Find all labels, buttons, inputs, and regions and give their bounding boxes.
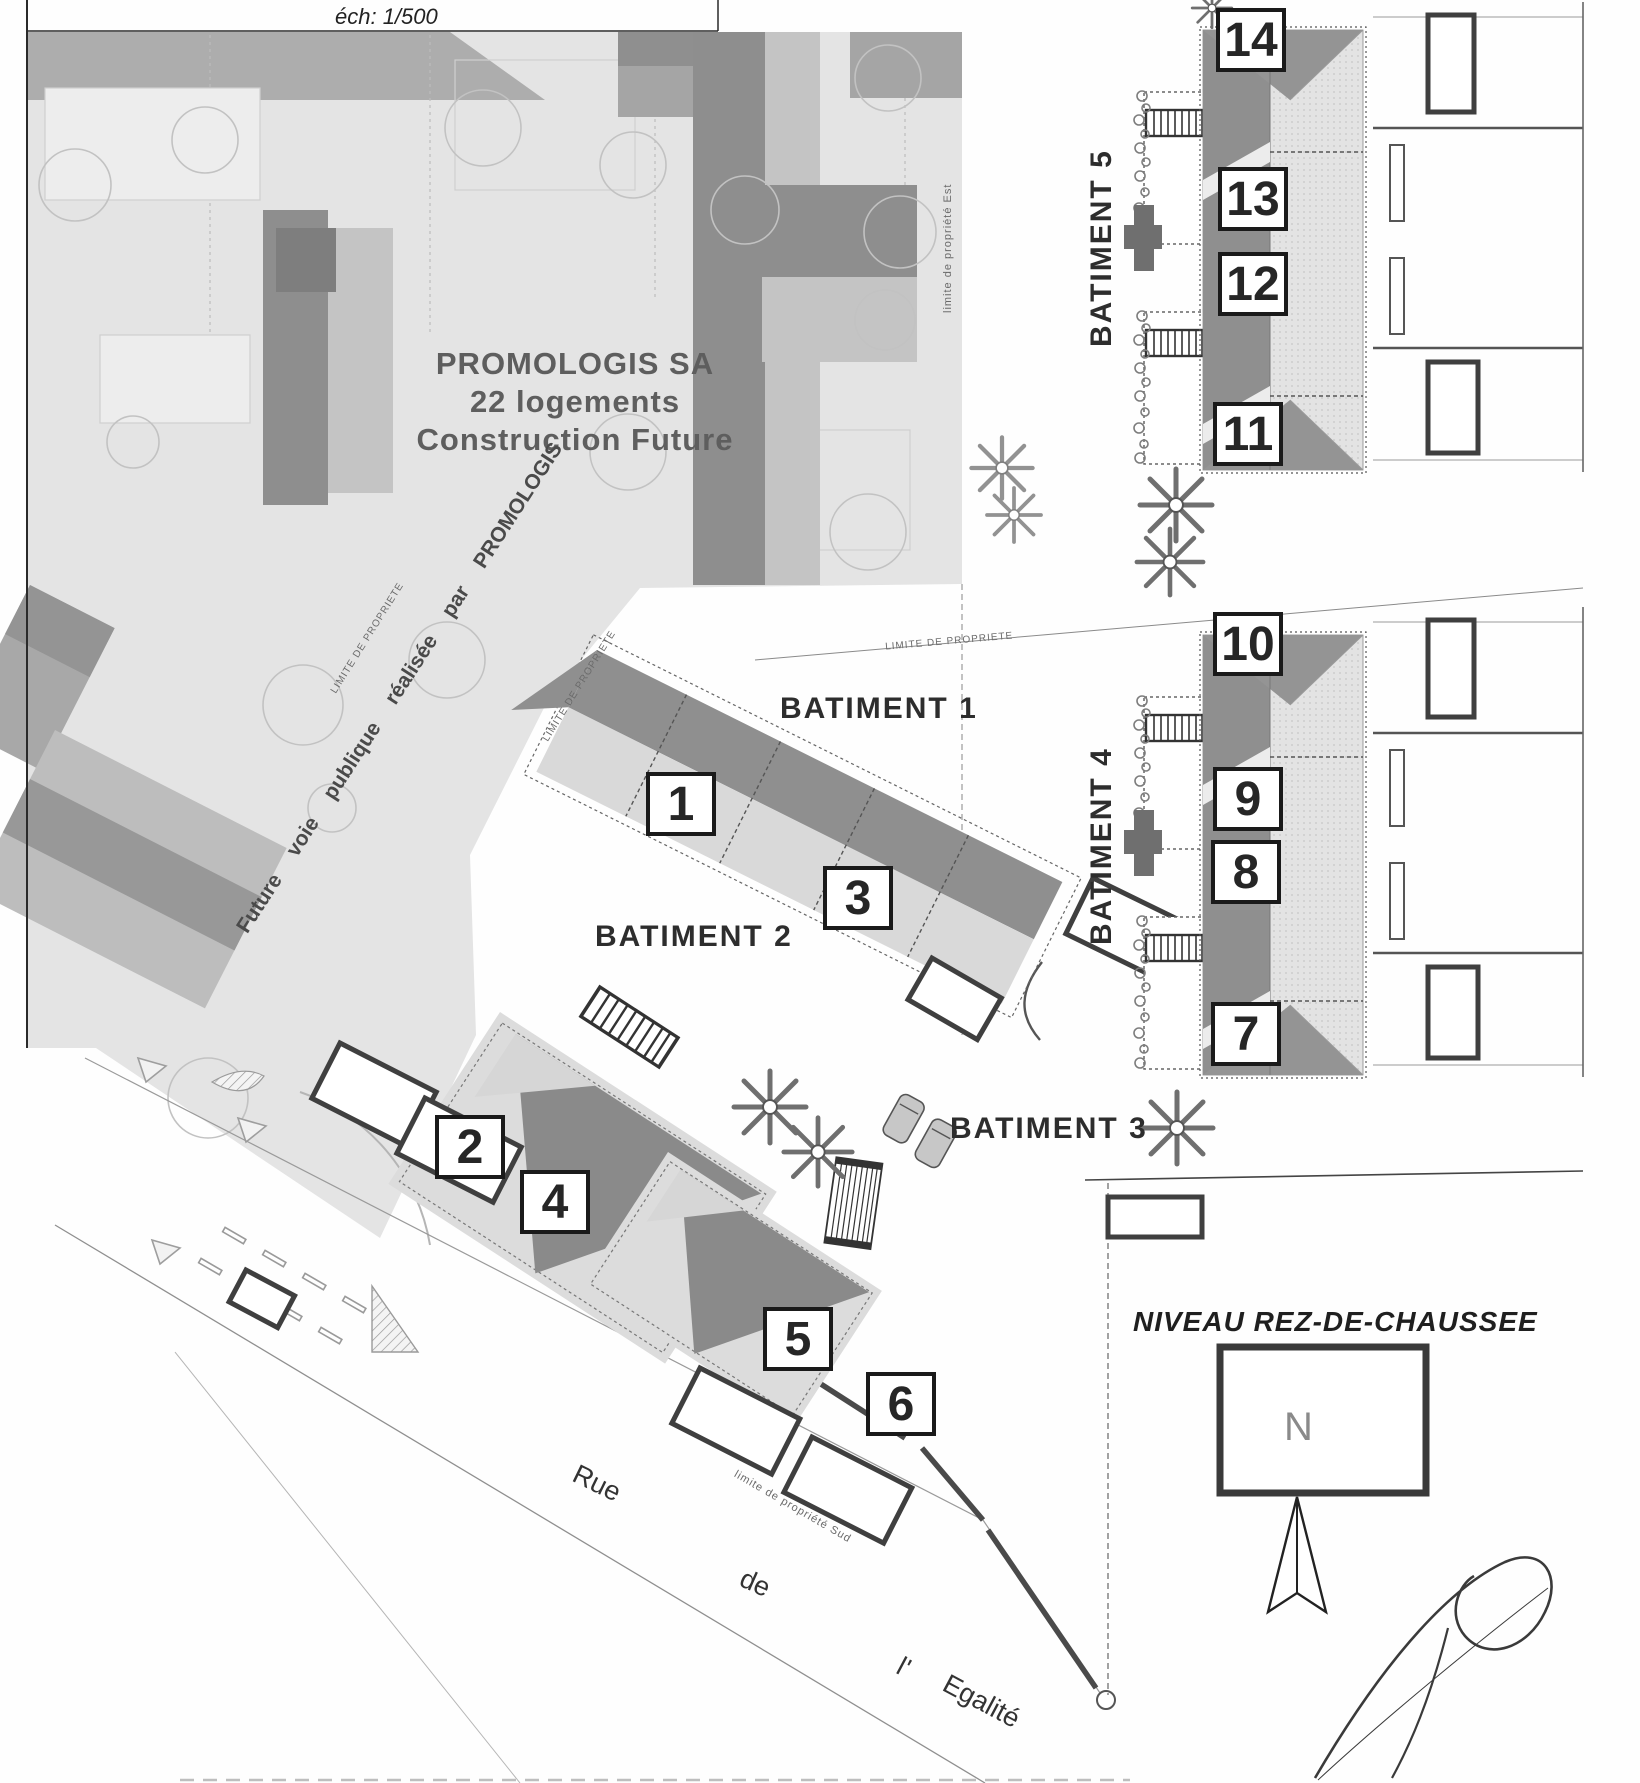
north-letter: N	[1284, 1405, 1313, 1450]
signature	[1315, 1557, 1552, 1780]
future-project-units: 22 logements	[330, 383, 820, 421]
unit-box-11: 11	[1213, 402, 1283, 466]
building-1-label: BATIMENT 1	[780, 692, 978, 726]
limit-est-label: limite de propriété Est	[942, 143, 954, 313]
unit-box-8: 8	[1211, 840, 1281, 904]
unit-box-5: 5	[763, 1307, 833, 1371]
north-box	[1220, 1347, 1426, 1493]
unit-box-4: 4	[520, 1170, 590, 1234]
site-plan: éch: 1/500 PROMOLOGIS SA 22 logements Co…	[0, 0, 1640, 1783]
stairs-building2	[581, 987, 678, 1067]
building-1	[488, 617, 1081, 1018]
niveau-label: NIVEAU REZ-DE-CHAUSSEE	[1133, 1306, 1538, 1338]
building-2-label: BATIMENT 2	[595, 920, 793, 954]
future-project-note: PROMOLOGIS SA 22 logements Construction …	[330, 345, 820, 459]
scale-label: éch: 1/500	[335, 4, 438, 30]
unit-box-1: 1	[646, 772, 716, 836]
building-4-label: BATIMENT 4	[1085, 755, 1119, 945]
unit-box-14: 14	[1216, 8, 1286, 72]
building-4	[1124, 607, 1583, 1078]
unit-box-2: 2	[435, 1115, 505, 1179]
unit-box-12: 12	[1218, 252, 1288, 316]
future-project-name: PROMOLOGIS SA	[330, 345, 820, 383]
building-3-label: BATIMENT 3	[950, 1112, 1148, 1146]
building-5-label: BATIMENT 5	[1085, 157, 1119, 347]
unit-box-10: 10	[1213, 612, 1283, 676]
unit-box-13: 13	[1218, 167, 1288, 231]
unit-box-9: 9	[1213, 767, 1283, 831]
unit-box-6: 6	[866, 1372, 936, 1436]
unit-box-3: 3	[823, 866, 893, 930]
unit-box-7: 7	[1211, 1002, 1281, 1066]
north-indicator	[1220, 1347, 1426, 1612]
future-project-status: Construction Future	[330, 421, 820, 459]
stairs-building3	[825, 1160, 882, 1246]
building-5	[1124, 2, 1583, 473]
